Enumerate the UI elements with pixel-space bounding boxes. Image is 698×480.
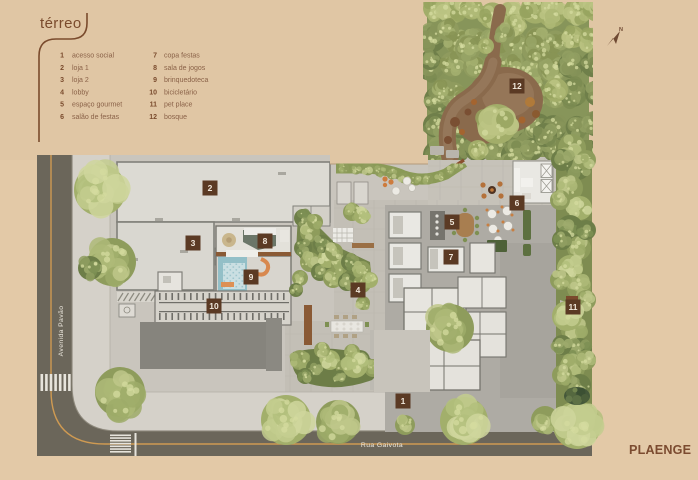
svg-text:11: 11 (150, 102, 158, 109)
svg-text:Avenida Pavão: Avenida Pavão (58, 306, 65, 357)
svg-text:9: 9 (153, 77, 157, 84)
svg-text:3: 3 (60, 77, 64, 84)
svg-text:espaço gourmet: espaço gourmet (72, 102, 122, 109)
svg-text:2: 2 (60, 65, 64, 72)
svg-text:N: N (619, 27, 623, 33)
svg-text:PLAENGE: PLAENGE (629, 443, 691, 457)
svg-text:6: 6 (60, 114, 64, 121)
svg-text:bicicletário: bicicletário (164, 89, 197, 96)
svg-text:5: 5 (450, 217, 455, 227)
svg-text:6: 6 (515, 198, 520, 208)
svg-text:9: 9 (249, 272, 254, 282)
svg-text:pet place: pet place (164, 102, 193, 109)
svg-text:loja 1: loja 1 (72, 65, 89, 72)
svg-text:10: 10 (149, 89, 157, 96)
svg-text:copa festas: copa festas (164, 53, 200, 60)
svg-text:5: 5 (60, 102, 64, 109)
svg-text:4: 4 (60, 89, 64, 96)
svg-text:1: 1 (401, 396, 406, 406)
svg-text:lobby: lobby (72, 89, 89, 96)
svg-text:10: 10 (209, 301, 219, 311)
svg-text:Rua Gaivota: Rua Gaivota (361, 442, 403, 449)
svg-text:sala de jogos: sala de jogos (164, 65, 206, 72)
svg-text:3: 3 (191, 238, 196, 248)
svg-text:8: 8 (153, 65, 157, 72)
svg-text:12: 12 (512, 81, 522, 91)
svg-text:salão de festas: salão de festas (72, 114, 120, 121)
svg-text:2: 2 (208, 183, 213, 193)
svg-text:térreo: térreo (40, 15, 82, 32)
svg-text:11: 11 (569, 302, 578, 312)
svg-text:brinquedoteca: brinquedoteca (164, 77, 208, 84)
svg-text:7: 7 (153, 53, 157, 60)
svg-text:7: 7 (449, 252, 454, 262)
svg-text:12: 12 (149, 114, 157, 121)
svg-text:bosque: bosque (164, 114, 187, 121)
svg-text:loja 2: loja 2 (72, 77, 89, 84)
svg-text:1: 1 (60, 53, 64, 60)
svg-text:acesso social: acesso social (72, 53, 114, 60)
svg-text:8: 8 (263, 236, 268, 246)
svg-text:4: 4 (356, 285, 361, 295)
